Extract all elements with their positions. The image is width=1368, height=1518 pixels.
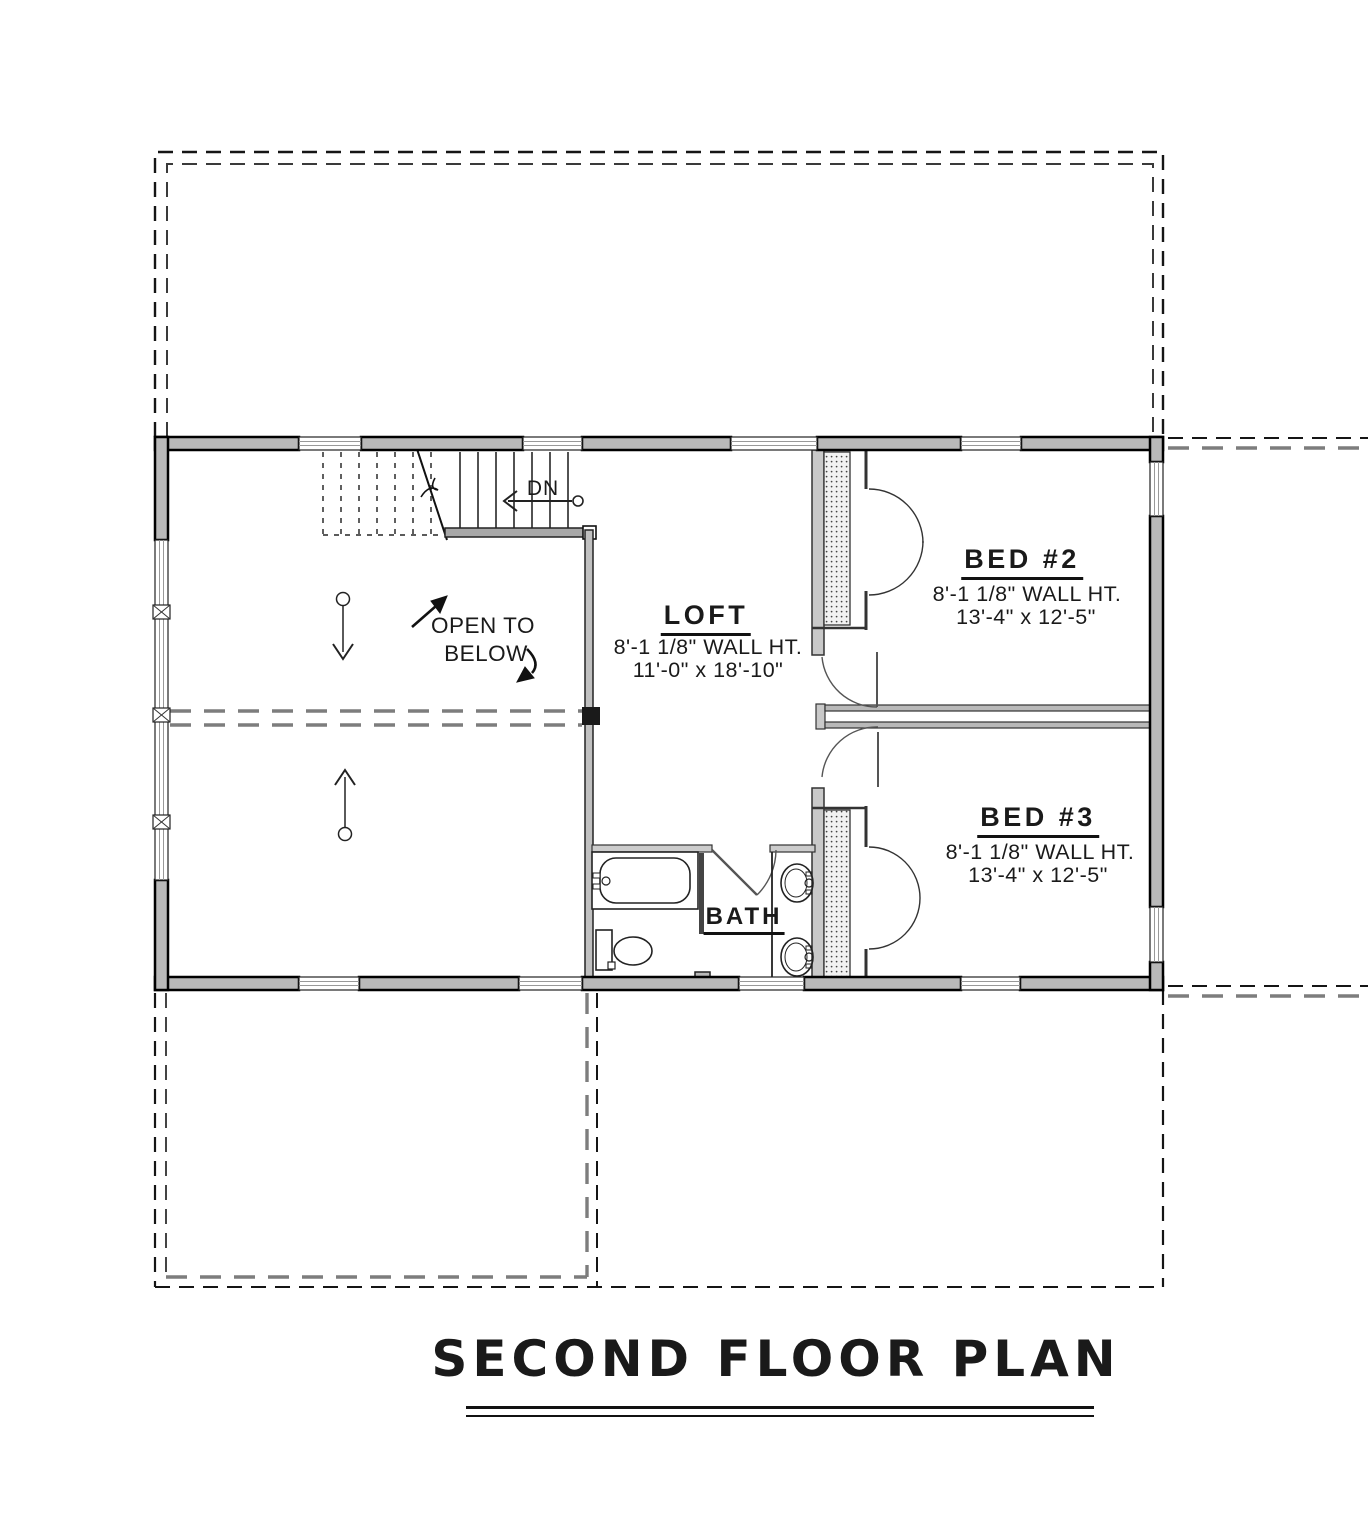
bed3-dimensions: 13'-4" x 12'-5" [968,864,1108,887]
bed2-dimensions: 13'-4" x 12'-5" [956,606,1096,629]
toilet [596,930,652,970]
bed2-room-label: BED #2 [961,544,1083,580]
window-bottom-2 [519,977,582,990]
window-bottom-3 [739,977,804,990]
window-top-2 [523,437,582,450]
window-top-1 [299,437,361,450]
bathtub [592,852,698,909]
bed2-closet [824,450,923,630]
roof-overhang-dashed-outline [155,152,1368,996]
bed3-door [822,727,878,787]
bed2-wall-height: 8'-1 1/8" WALL HT. [933,583,1122,606]
loft-wall-height: 8'-1 1/8" WALL HT. [614,636,803,659]
window-top-4 [961,437,1021,450]
window-bottom-1 [299,977,359,990]
sink-2 [781,938,813,976]
title-underline-2 [466,1415,1094,1417]
loft-room-label: LOFT [661,600,751,636]
sink-1 [781,864,813,902]
window-top-3 [731,437,817,450]
window-mullion [153,815,170,829]
loft-dimensions: 11'-0" x 18'-10" [633,659,784,682]
bath-room-label: BATH [704,903,785,935]
window-mullion [153,605,170,619]
open-below-leader-arrows [412,596,536,682]
window-mullion [153,708,170,722]
down-direction-arrow [333,593,353,660]
window-bottom-4 [961,977,1020,990]
open-to-below-label-line2: BELOW [444,641,528,667]
floor-plan-sheet: DN OPEN TO BELOW LOFT 8'-1 1/8" WALL HT.… [0,0,1368,1518]
title-underline-1 [466,1406,1094,1409]
window-right-top [1150,462,1163,516]
up-direction-arrow [335,770,355,841]
window-left [153,540,170,880]
bed3-room-label: BED #3 [977,802,1099,838]
window-right-bottom [1150,907,1163,962]
floor-plan-drawing [0,0,1368,1518]
bed3-closet [824,806,920,988]
open-to-below-label-line1: OPEN TO [431,613,535,639]
sheet-title: SECOND FLOOR PLAN [431,1330,1120,1388]
railing-wall [582,530,600,990]
stair-dn-label: DN [527,477,559,501]
floor-edge-dashed [170,711,582,725]
lower-level-dashed-outline [155,990,1163,1287]
bed3-wall-height: 8'-1 1/8" WALL HT. [946,841,1135,864]
direction-arrows [333,593,355,841]
bed2-door [822,652,877,707]
bath-door [712,850,776,895]
